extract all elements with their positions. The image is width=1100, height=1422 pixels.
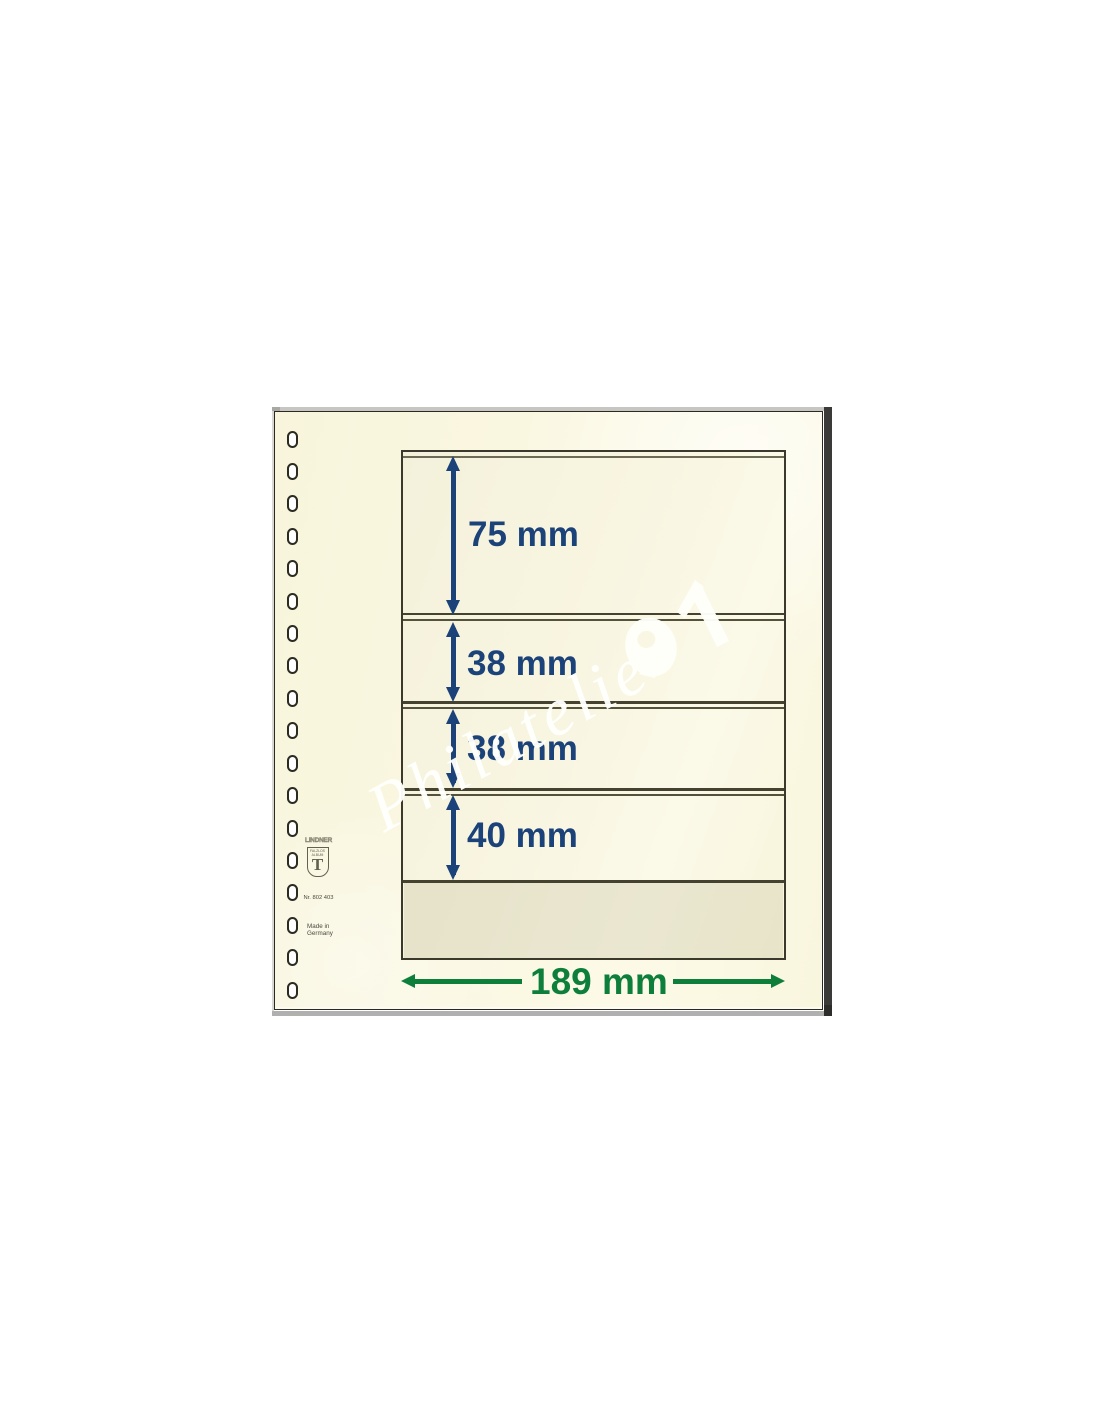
svg-text:Philatelie: Philatelie — [354, 630, 662, 847]
